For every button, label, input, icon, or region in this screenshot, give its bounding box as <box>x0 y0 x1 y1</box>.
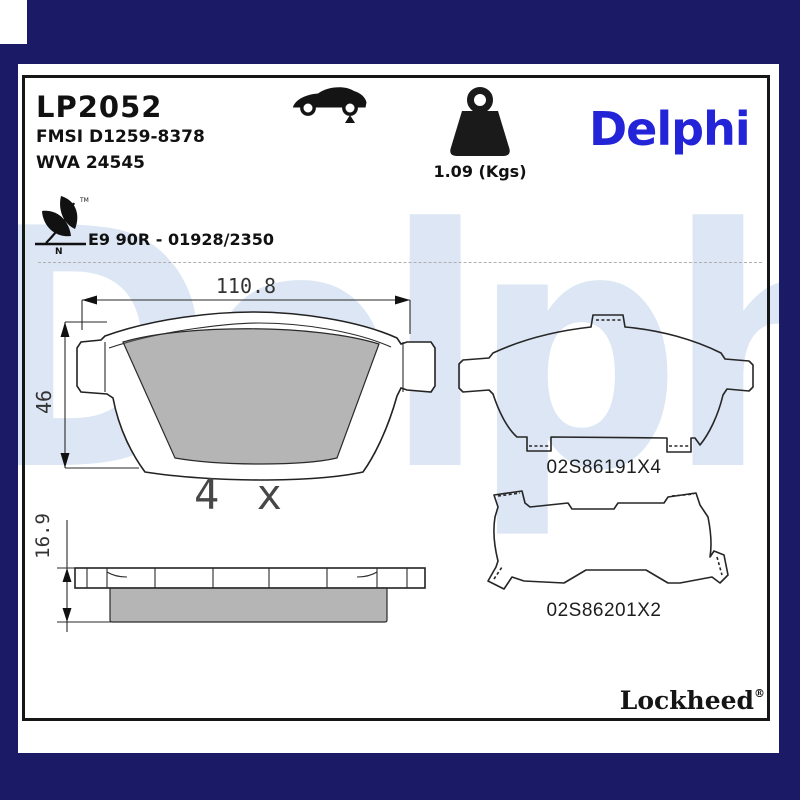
eco-mark-tm: TM <box>79 197 89 204</box>
lockheed-logo: Lockheed® <box>560 686 765 715</box>
frame-corner-notch <box>0 0 27 44</box>
quantity-label: 4 x <box>194 470 288 519</box>
weight-value: 1.09 (Kgs) <box>424 162 536 181</box>
eco-mark-n: N <box>55 247 63 257</box>
frame-top <box>0 0 800 64</box>
frame-bottom <box>0 753 800 800</box>
part-number: LP2052 <box>36 90 162 124</box>
datasheet-page: { "header": { "part_number": "LP2052", "… <box>0 0 800 800</box>
accessory1-code: 02S86191X4 <box>474 457 734 479</box>
eco-leaf-icon: N TM <box>34 194 90 256</box>
section-divider <box>38 262 762 263</box>
car-icon <box>291 84 369 124</box>
homologation-text: E9 90R - 01928/2350 <box>88 230 274 249</box>
registered-mark: ® <box>754 687 765 700</box>
rear-axle-marker-icon <box>345 115 355 123</box>
wva-reference: WVA 24545 <box>36 153 145 173</box>
fmsi-reference: FMSI D1259-8378 <box>36 127 205 147</box>
frame-left <box>0 0 18 800</box>
frame-right <box>779 0 800 800</box>
accessory2-code: 02S86201X2 <box>474 600 734 622</box>
lockheed-text: Lockheed <box>620 686 754 715</box>
delphi-logo: Delphi <box>589 102 750 156</box>
weight-icon <box>446 87 514 161</box>
